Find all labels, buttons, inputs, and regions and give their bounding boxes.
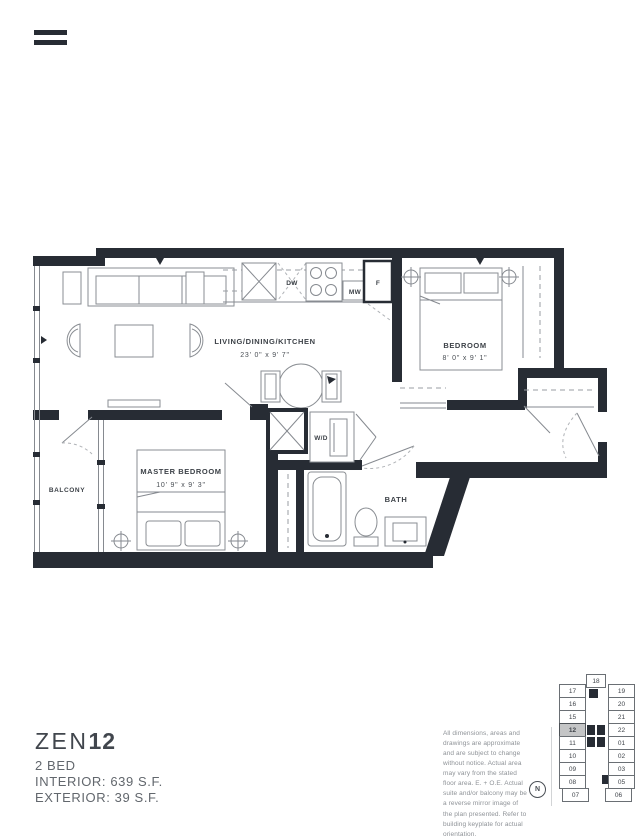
keyplate-unit: 18 bbox=[586, 674, 606, 688]
keyplate-elevator-icon bbox=[597, 725, 605, 735]
divider bbox=[551, 727, 552, 806]
keyplate-unit-highlighted: 12 bbox=[559, 723, 586, 737]
dishwasher-icon: DW bbox=[278, 263, 306, 300]
master-dims: 10' 9" x 9' 3" bbox=[156, 482, 206, 489]
keyplate-unit: 02 bbox=[608, 749, 635, 763]
window-left bbox=[33, 266, 40, 552]
keyplate-unit: 06 bbox=[605, 788, 632, 802]
keyplate-unit: 16 bbox=[559, 697, 586, 711]
living-label: LIVING/DINING/KITCHEN bbox=[214, 337, 315, 346]
compass-label: N bbox=[535, 786, 540, 793]
keyplate-unit: 01 bbox=[608, 736, 635, 750]
master-bed bbox=[137, 450, 225, 550]
menu-bar bbox=[34, 40, 67, 45]
keyplate-elevator-icon bbox=[587, 725, 595, 735]
vanity-sink-icon bbox=[385, 517, 426, 546]
keyplate-elevator-icon bbox=[587, 737, 595, 747]
side-table bbox=[186, 272, 204, 304]
living-dims: 23' 0" x 9' 7" bbox=[240, 352, 290, 359]
side-table bbox=[63, 272, 81, 304]
svg-text:W/D: W/D bbox=[314, 435, 328, 442]
toilet-icon bbox=[354, 508, 378, 546]
keyplate-unit: 07 bbox=[562, 788, 589, 802]
kitchen-sink-icon bbox=[242, 263, 276, 300]
shaft bbox=[268, 410, 306, 452]
ceiling-light-icon bbox=[111, 531, 131, 551]
keyplate-unit: 11 bbox=[559, 736, 586, 750]
keyplate-unit: 05 bbox=[608, 775, 635, 789]
keyplate-unit: 17 bbox=[559, 684, 586, 698]
media-console bbox=[108, 400, 160, 407]
keyplate-unit: 20 bbox=[608, 697, 635, 711]
unit-interior-area: INTERIOR: 639 S.F. bbox=[35, 774, 163, 789]
fridge-icon: F bbox=[364, 261, 392, 320]
unit-info: ZEN12 2 BED INTERIOR: 639 S.F. EXTERIOR:… bbox=[35, 728, 163, 805]
balcony-label: BALCONY bbox=[49, 487, 85, 494]
dining-set bbox=[261, 364, 341, 408]
foyer-closet bbox=[524, 390, 594, 407]
bedroom-dims: 8' 0" x 9' 1" bbox=[443, 355, 488, 362]
svg-text:DW: DW bbox=[286, 280, 298, 287]
keyplate-unit: 22 bbox=[608, 723, 635, 737]
kitchen: DW MW F bbox=[223, 261, 392, 320]
keyplate-unit: 09 bbox=[559, 762, 586, 776]
compass-north-icon: N bbox=[529, 781, 546, 798]
keyplate-elevator-icon bbox=[589, 689, 598, 698]
keyplate-unit: 19 bbox=[608, 684, 635, 698]
unit-name-brand: ZEN bbox=[35, 728, 89, 754]
ceiling-light-icon bbox=[228, 531, 248, 551]
armchair-left bbox=[67, 324, 80, 357]
keyplate: 18 17 16 15 12 11 10 09 08 07 19 20 21 2… bbox=[556, 672, 640, 804]
keyplate-unit: 21 bbox=[608, 710, 635, 724]
svg-text:MW: MW bbox=[349, 289, 362, 296]
menu-icon[interactable] bbox=[34, 30, 67, 47]
keyplate-unit: 03 bbox=[608, 762, 635, 776]
unit-name: ZEN12 bbox=[35, 728, 163, 755]
floor-plan: DW MW F W/D bbox=[0, 238, 640, 583]
washer-dryer-closet: W/D bbox=[310, 412, 376, 462]
window-balcony-master bbox=[97, 420, 105, 552]
disclaimer-text: All dimensions, areas and drawings are a… bbox=[443, 729, 527, 840]
stove-icon bbox=[306, 263, 342, 301]
keyplate-unit: 10 bbox=[559, 749, 586, 763]
svg-text:F: F bbox=[376, 280, 380, 287]
ceiling-light-icon bbox=[401, 267, 421, 287]
bath-label: BATH bbox=[385, 495, 408, 504]
bedroom-label: BEDROOM bbox=[443, 341, 486, 350]
armchair-right bbox=[190, 324, 203, 357]
menu-bar bbox=[34, 30, 67, 35]
coffee-table bbox=[115, 325, 153, 357]
unit-name-number: 12 bbox=[89, 728, 117, 754]
master-label: MASTER BEDROOM bbox=[140, 467, 221, 476]
unit-bed-type: 2 BED bbox=[35, 758, 163, 773]
sofa bbox=[88, 268, 234, 306]
keyplate-elevator-icon bbox=[597, 737, 605, 747]
keyplate-unit: 08 bbox=[559, 775, 586, 789]
page: { "menu": { "icon": "hamburger" }, "floo… bbox=[0, 0, 640, 828]
bathroom bbox=[288, 472, 426, 548]
keyplate-unit: 15 bbox=[559, 710, 586, 724]
unit-exterior-area: EXTERIOR: 39 S.F. bbox=[35, 790, 163, 805]
